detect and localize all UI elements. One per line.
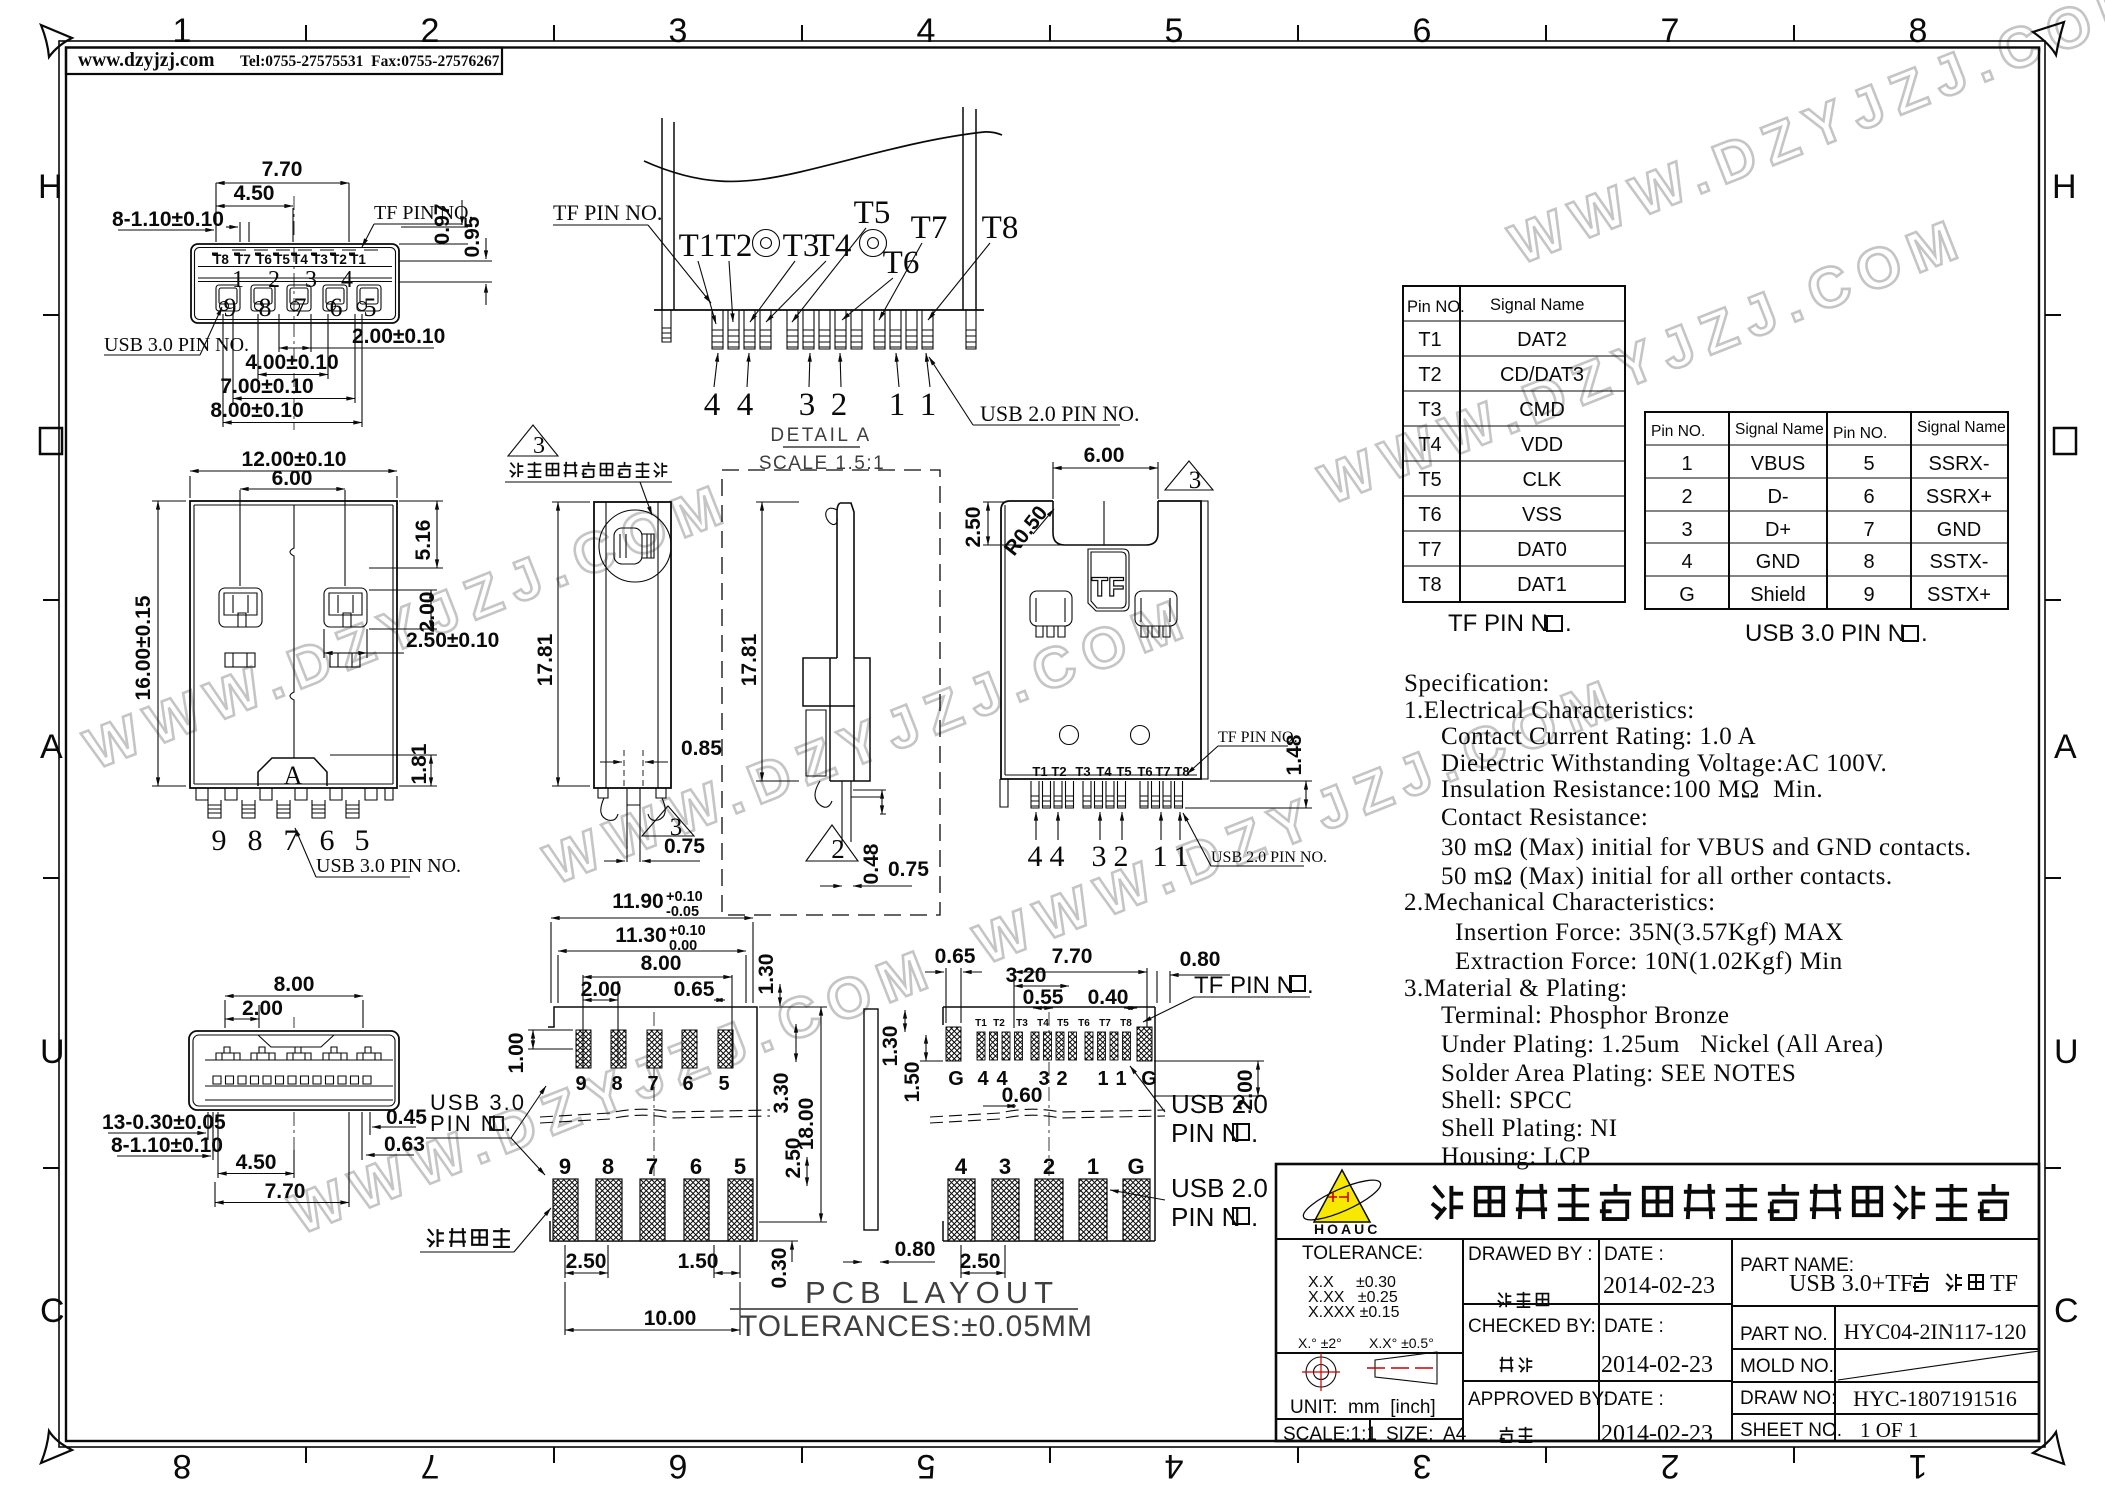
svg-text:VSS: VSS <box>1522 504 1562 526</box>
svg-text:www.dzyjzj.com: www.dzyjzj.com <box>78 50 214 71</box>
svg-text:4: 4 <box>1165 1447 1184 1485</box>
svg-text:0.85: 0.85 <box>681 737 722 760</box>
svg-text:3: 3 <box>1681 519 1692 541</box>
svg-text:4: 4 <box>917 12 936 50</box>
svg-text:5: 5 <box>734 1154 746 1179</box>
svg-text:4.50: 4.50 <box>236 1151 277 1174</box>
svg-text:0.97: 0.97 <box>431 204 454 245</box>
svg-text:Housing: LCP: Housing: LCP <box>1441 1143 1591 1170</box>
svg-text:T3: T3 <box>1418 399 1441 421</box>
svg-text:T7: T7 <box>1155 764 1170 779</box>
svg-text:Pin NO.: Pin NO. <box>1407 298 1465 316</box>
svg-text:HYC-1807191516: HYC-1807191516 <box>1853 1386 2017 1411</box>
svg-text:3: 3 <box>999 1154 1011 1179</box>
svg-text:1: 1 <box>920 387 937 423</box>
svg-text:6: 6 <box>1413 12 1432 50</box>
svg-text:Solder Area Plating: SEE NOTES: Solder Area Plating: SEE NOTES <box>1441 1060 1796 1087</box>
svg-text:8: 8 <box>173 1447 192 1485</box>
svg-text:3: 3 <box>533 433 545 459</box>
svg-text:7: 7 <box>284 824 299 857</box>
svg-text:USB 2.0 PIN NO.: USB 2.0 PIN NO. <box>1211 849 1327 866</box>
svg-text:SSRX-: SSRX- <box>1928 453 1989 475</box>
svg-text:DETAIL A: DETAIL A <box>770 425 871 446</box>
svg-text:3: 3 <box>799 387 816 423</box>
svg-text:A: A <box>40 728 63 766</box>
svg-text:3: 3 <box>1189 467 1202 494</box>
svg-text:Contact Current Rating: 1.0 A: Contact Current Rating: 1.0 A <box>1441 723 1756 750</box>
svg-text:7.00±0.10: 7.00±0.10 <box>220 375 313 398</box>
svg-text:SSRX+: SSRX+ <box>1926 486 1992 508</box>
svg-text:T5: T5 <box>1418 469 1441 491</box>
svg-text:PIN N: PIN N <box>1171 1202 1240 1232</box>
svg-text:U: U <box>40 1033 65 1071</box>
svg-text:1: 1 <box>173 12 192 50</box>
svg-text:CMD: CMD <box>1519 399 1565 421</box>
svg-text:.: . <box>1307 972 1314 999</box>
svg-text:Signal Name: Signal Name <box>1735 421 1824 438</box>
svg-text:Under Plating: 1.25um Nickel: Under Plating: 1.25um Nickel (All Area) <box>1441 1031 1884 1058</box>
svg-text:1.Electrical Characteristics:: 1.Electrical Characteristics: <box>1404 697 1695 724</box>
svg-text:T3: T3 <box>1016 1018 1028 1029</box>
svg-text:T2: T2 <box>1418 364 1441 386</box>
svg-text:0.80: 0.80 <box>895 1238 936 1261</box>
svg-text:8: 8 <box>1863 551 1874 573</box>
svg-text:0.63: 0.63 <box>384 1133 425 1156</box>
svg-text:T6: T6 <box>883 245 920 281</box>
svg-text:0.95: 0.95 <box>461 216 484 257</box>
svg-text:T1: T1 <box>975 1018 987 1029</box>
svg-text:2: 2 <box>421 12 440 50</box>
svg-text:Shell: SPCC: Shell: SPCC <box>1441 1087 1572 1114</box>
svg-text:TOLERANCE:: TOLERANCE: <box>1302 1243 1423 1264</box>
svg-text:PART NO.: PART NO. <box>1740 1324 1828 1345</box>
svg-text:3.Material & Plating:: 3.Material & Plating: <box>1404 975 1628 1002</box>
svg-text:9: 9 <box>224 293 237 322</box>
svg-text:MOLD NO.: MOLD NO. <box>1740 1356 1834 1377</box>
svg-text:6: 6 <box>669 1447 688 1485</box>
svg-text:TF PIN NO.: TF PIN NO. <box>553 200 662 225</box>
svg-text:.: . <box>1921 620 1928 647</box>
svg-text:SCALE:1:1: SCALE:1:1 <box>1283 1424 1377 1445</box>
svg-text:7.70: 7.70 <box>1052 945 1093 968</box>
svg-text:T8: T8 <box>1120 1018 1132 1029</box>
svg-text:9: 9 <box>575 1073 586 1095</box>
svg-text:HOAUC: HOAUC <box>1314 1221 1380 1237</box>
svg-text:SHEET NO.: SHEET NO. <box>1740 1420 1842 1441</box>
svg-text:7: 7 <box>647 1073 658 1095</box>
svg-text:8: 8 <box>259 293 272 322</box>
svg-text:0.80: 0.80 <box>1180 948 1221 971</box>
svg-text:DAT2: DAT2 <box>1517 329 1567 351</box>
svg-text:7: 7 <box>1863 519 1874 541</box>
svg-text:1: 1 <box>1097 1068 1108 1090</box>
svg-text:0.40: 0.40 <box>1088 986 1129 1009</box>
svg-text:DRAWED BY :: DRAWED BY : <box>1468 1244 1593 1265</box>
svg-text:T1: T1 <box>679 228 716 264</box>
svg-text:T6: T6 <box>1418 504 1441 526</box>
svg-text:T6: T6 <box>1137 764 1152 779</box>
svg-text:SSTX+: SSTX+ <box>1927 584 1991 606</box>
svg-text:T7: T7 <box>1418 539 1441 561</box>
svg-text:D+: D+ <box>1765 519 1791 541</box>
svg-text:USB 3.0 PIN N: USB 3.0 PIN N <box>1745 620 1905 647</box>
svg-text:9: 9 <box>1863 584 1874 606</box>
svg-text:USB 2.0 PIN NO.: USB 2.0 PIN NO. <box>980 401 1140 426</box>
svg-text:Specification:: Specification: <box>1404 670 1550 697</box>
svg-text:5: 5 <box>1863 453 1874 475</box>
svg-text:0.75: 0.75 <box>664 835 705 858</box>
svg-text:4.50: 4.50 <box>234 182 275 205</box>
svg-text:PIN N: PIN N <box>1171 1118 1240 1148</box>
svg-text:2: 2 <box>1056 1068 1067 1090</box>
svg-text:Signal Name: Signal Name <box>1917 419 2006 436</box>
svg-text:10.00: 10.00 <box>644 1307 697 1330</box>
svg-text:Insulation Resistance:100 MΩ: Insulation Resistance:100 MΩ Min. <box>1441 776 1823 803</box>
svg-text:5.16: 5.16 <box>412 520 435 561</box>
svg-text:T8: T8 <box>1418 574 1441 596</box>
svg-text:TF: TF <box>1092 572 1125 602</box>
svg-text:T5: T5 <box>1116 764 1131 779</box>
svg-text:0.65: 0.65 <box>935 945 976 968</box>
svg-text:2014-02-23: 2014-02-23 <box>1601 1352 1713 1378</box>
svg-text:8: 8 <box>611 1073 622 1095</box>
svg-text:CLK: CLK <box>1523 469 1563 491</box>
svg-text:DATE :: DATE : <box>1604 1244 1664 1265</box>
svg-text:4.00±0.10: 4.00±0.10 <box>245 351 338 374</box>
svg-text:0.48: 0.48 <box>860 843 883 884</box>
svg-text:2.00±0.10: 2.00±0.10 <box>352 325 445 348</box>
svg-text:7: 7 <box>646 1154 658 1179</box>
svg-text:HYC04-2IN117-120: HYC04-2IN117-120 <box>1844 1319 2027 1344</box>
svg-text:PIN N: PIN N <box>430 1111 499 1136</box>
svg-text:T5: T5 <box>854 195 891 231</box>
svg-text:2.50±0.10: 2.50±0.10 <box>406 629 499 652</box>
svg-text:SCALE 1.5:1: SCALE 1.5:1 <box>759 453 885 474</box>
svg-text:G: G <box>948 1068 964 1090</box>
svg-text:2.00: 2.00 <box>416 592 439 633</box>
svg-text:1.50: 1.50 <box>678 1250 719 1273</box>
svg-text:6.00: 6.00 <box>272 467 313 490</box>
svg-text:3.30: 3.30 <box>770 1073 793 1114</box>
svg-text:T3: T3 <box>1075 764 1090 779</box>
svg-text:2: 2 <box>1043 1154 1055 1179</box>
svg-text:TF PIN NO.: TF PIN NO. <box>374 202 473 224</box>
svg-text:GND: GND <box>1756 551 1800 573</box>
svg-text:5: 5 <box>355 824 370 857</box>
svg-text:6: 6 <box>1863 486 1874 508</box>
svg-text:0.65: 0.65 <box>674 978 715 1001</box>
svg-text:8: 8 <box>1909 12 1928 50</box>
svg-text:4: 4 <box>1050 840 1065 873</box>
svg-text:DAT0: DAT0 <box>1517 539 1567 561</box>
svg-text:4: 4 <box>1028 840 1043 873</box>
svg-text:2014-02-23: 2014-02-23 <box>1603 1273 1715 1299</box>
svg-text:1: 1 <box>889 387 906 423</box>
svg-text:1 OF 1: 1 OF 1 <box>1860 1418 1918 1442</box>
svg-text:A: A <box>2054 728 2077 766</box>
svg-text:9: 9 <box>212 824 227 857</box>
svg-text:.: . <box>505 1111 511 1136</box>
svg-text:6: 6 <box>330 293 343 322</box>
svg-text:6: 6 <box>690 1154 702 1179</box>
svg-text:VBUS: VBUS <box>1751 453 1805 475</box>
svg-text:Terminal: Phosphor Bronze: Terminal: Phosphor Bronze <box>1441 1002 1729 1029</box>
svg-text:DRAW NO:: DRAW NO: <box>1740 1388 1836 1409</box>
svg-text:3: 3 <box>669 12 688 50</box>
svg-text:Shell Plating: NI: Shell Plating: NI <box>1441 1115 1618 1142</box>
svg-text:SIZE: A4: SIZE: A4 <box>1386 1424 1467 1445</box>
svg-text:9: 9 <box>559 1154 571 1179</box>
svg-text:TF PIN N: TF PIN N <box>1194 972 1294 999</box>
svg-text:D-: D- <box>1767 486 1788 508</box>
svg-text:8-1.10±0.10: 8-1.10±0.10 <box>112 208 224 231</box>
svg-text:1.48: 1.48 <box>1283 734 1306 775</box>
svg-text:1.81: 1.81 <box>408 743 431 784</box>
svg-text:X.° ±2° X.X° ±0.5°: X.° ±2° X.X° ±0.5° <box>1298 1335 1434 1351</box>
svg-text:0.60: 0.60 <box>1002 1084 1043 1107</box>
svg-text:SSTX-: SSTX- <box>1930 551 1989 573</box>
svg-text:1.30: 1.30 <box>879 1026 902 1067</box>
svg-text:2014-02-23: 2014-02-23 <box>1601 1421 1713 1447</box>
svg-text:X.XXX ±0.15: X.XXX ±0.15 <box>1308 1304 1400 1321</box>
svg-text:1: 1 <box>232 267 244 293</box>
svg-text:6.00: 6.00 <box>1084 444 1125 467</box>
svg-text:.: . <box>1251 1118 1258 1148</box>
svg-text:Shield: Shield <box>1750 584 1806 606</box>
svg-text:1: 1 <box>1115 1068 1126 1090</box>
svg-text:H: H <box>38 168 63 206</box>
svg-text:7.70: 7.70 <box>265 1180 306 1203</box>
svg-text:2.50: 2.50 <box>960 1250 1001 1273</box>
svg-text:0.55: 0.55 <box>1023 986 1064 1009</box>
svg-text:2.50: 2.50 <box>566 1250 607 1273</box>
svg-text:7: 7 <box>294 293 307 322</box>
svg-text:T2: T2 <box>993 1018 1005 1029</box>
svg-text:4: 4 <box>737 387 754 423</box>
svg-text:G: G <box>1141 1068 1157 1090</box>
svg-text:2.00: 2.00 <box>242 997 283 1020</box>
svg-text:Pin NO.: Pin NO. <box>1651 423 1705 440</box>
svg-text:2: 2 <box>831 387 848 423</box>
svg-text:VDD: VDD <box>1521 434 1563 456</box>
svg-text:A: A <box>284 761 303 790</box>
svg-text:3: 3 <box>1092 840 1107 873</box>
svg-text:DATE :: DATE : <box>1604 1389 1664 1410</box>
svg-text:3: 3 <box>1413 1447 1432 1485</box>
svg-text:+0.10: +0.10 <box>669 923 706 939</box>
svg-text:5: 5 <box>364 293 377 322</box>
svg-text:.: . <box>1565 610 1572 637</box>
svg-text:2.Mechanical Characteristics:: 2.Mechanical Characteristics: <box>1404 889 1716 916</box>
svg-text:1.50: 1.50 <box>901 1062 924 1103</box>
svg-text:USB 3.0+TF: USB 3.0+TF <box>1789 1271 1913 1297</box>
svg-text:8.00: 8.00 <box>274 973 315 996</box>
svg-text:4: 4 <box>704 387 721 423</box>
svg-text:17.81: 17.81 <box>738 633 761 686</box>
svg-text:2.50: 2.50 <box>962 507 985 548</box>
svg-text:1: 1 <box>1153 840 1168 873</box>
svg-text:T4: T4 <box>815 228 852 264</box>
svg-text:30 mΩ (Max) initial for VBUS a: 30 mΩ (Max) initial for VBUS and GND con… <box>1441 834 1972 861</box>
svg-text:4: 4 <box>1681 551 1692 573</box>
svg-text:.: . <box>1251 1202 1258 1232</box>
svg-text:7: 7 <box>1661 12 1680 50</box>
svg-text:DATE :: DATE : <box>1604 1316 1664 1337</box>
svg-text:PCB LAYOUT: PCB LAYOUT <box>805 1275 1059 1310</box>
svg-text:17.81: 17.81 <box>534 633 557 686</box>
svg-text:8.00: 8.00 <box>641 952 682 975</box>
svg-text:16.00±0.15: 16.00±0.15 <box>132 595 155 700</box>
svg-text:GND: GND <box>1937 519 1981 541</box>
svg-text:USB 2.0: USB 2.0 <box>1171 1089 1268 1119</box>
svg-text:5: 5 <box>718 1073 729 1095</box>
svg-text:T1: T1 <box>1032 764 1047 779</box>
svg-text:G: G <box>1127 1154 1144 1179</box>
svg-text:2.00: 2.00 <box>581 978 622 1001</box>
svg-text:CD/DAT3: CD/DAT3 <box>1500 364 1584 386</box>
svg-text:3.20: 3.20 <box>1006 964 1047 987</box>
svg-text:2.50: 2.50 <box>782 1138 805 1179</box>
svg-text:TF: TF <box>1990 1271 2018 1297</box>
svg-text:50 mΩ (Max) initial for all or: 50 mΩ (Max) initial for all orther conta… <box>1441 863 1893 890</box>
svg-text:T4: T4 <box>1037 1018 1049 1029</box>
svg-text:G: G <box>1679 584 1695 606</box>
svg-text:2: 2 <box>1114 840 1129 873</box>
svg-text:Signal Name: Signal Name <box>1490 296 1584 314</box>
svg-text:+0.10: +0.10 <box>666 889 703 905</box>
svg-text:UNIT: mm [inch]: UNIT: mm [inch] <box>1290 1397 1436 1418</box>
svg-text:1: 1 <box>1087 1154 1099 1179</box>
svg-text:4: 4 <box>955 1154 968 1179</box>
svg-text:USB 2.0: USB 2.0 <box>1171 1173 1268 1203</box>
svg-text:11.90: 11.90 <box>612 890 663 913</box>
svg-text:1: 1 <box>1681 453 1692 475</box>
svg-text:T6: T6 <box>1078 1018 1090 1029</box>
svg-text:C: C <box>40 1292 65 1330</box>
svg-text:1.30: 1.30 <box>755 954 778 995</box>
svg-text:1: 1 <box>1174 840 1189 873</box>
svg-text:H: H <box>2052 168 2077 206</box>
svg-text:Extraction Force: 10N(1.02Kgf): Extraction Force: 10N(1.02Kgf) Min <box>1455 948 1843 975</box>
svg-text:2: 2 <box>1661 1447 1680 1485</box>
svg-text:Tel:0755-27575531 Fax:0755-27: Tel:0755-27575531 Fax:0755-27576267 <box>240 53 500 70</box>
svg-text:T4: T4 <box>1418 434 1441 456</box>
svg-text:TF PIN N: TF PIN N <box>1448 610 1548 637</box>
svg-text:8-1.10±0.10: 8-1.10±0.10 <box>111 1134 223 1157</box>
svg-text:Pin NO.: Pin NO. <box>1833 425 1887 442</box>
svg-text:6: 6 <box>320 824 335 857</box>
svg-text:11.30: 11.30 <box>615 924 666 947</box>
svg-text:Dielectric Withstanding Voltag: Dielectric Withstanding Voltage:AC 100V. <box>1441 750 1887 777</box>
svg-text:2: 2 <box>831 834 845 864</box>
svg-text:T7: T7 <box>1099 1018 1111 1029</box>
svg-text:13-0.30±0.05: 13-0.30±0.05 <box>102 1111 226 1134</box>
svg-text:T8: T8 <box>1174 764 1189 779</box>
svg-text:T2: T2 <box>1051 764 1066 779</box>
svg-text:1: 1 <box>1909 1447 1928 1485</box>
svg-text:2: 2 <box>1681 486 1692 508</box>
svg-text:8: 8 <box>248 824 263 857</box>
svg-text:T4: T4 <box>1096 764 1112 779</box>
svg-text:5: 5 <box>1165 12 1184 50</box>
svg-text:USB 3.0 PIN NO.: USB 3.0 PIN NO. <box>104 334 249 356</box>
svg-text:Insertion Force: 35N(3.57Kgf): Insertion Force: 35N(3.57Kgf) MAX <box>1455 919 1844 946</box>
svg-text:0.45: 0.45 <box>386 1106 427 1129</box>
svg-text:T7: T7 <box>911 210 948 246</box>
svg-text:7: 7 <box>421 1447 440 1485</box>
svg-text:0.30: 0.30 <box>768 1248 791 1289</box>
svg-text:T2: T2 <box>716 228 753 264</box>
svg-text:C: C <box>2054 1292 2079 1330</box>
svg-text:T1: T1 <box>1418 329 1441 351</box>
svg-text:1.00: 1.00 <box>505 1033 528 1074</box>
svg-text:5: 5 <box>917 1447 936 1485</box>
svg-text:DAT1: DAT1 <box>1517 574 1567 596</box>
svg-text:CHECKED BY:: CHECKED BY: <box>1468 1316 1596 1337</box>
svg-text:0.75: 0.75 <box>888 858 929 881</box>
svg-text:T5: T5 <box>1057 1018 1069 1029</box>
svg-text:USB 3.0 PIN NO.: USB 3.0 PIN NO. <box>316 855 461 877</box>
svg-text:8: 8 <box>602 1154 614 1179</box>
svg-text:TOLERANCES:±0.05MM: TOLERANCES:±0.05MM <box>739 1310 1093 1343</box>
svg-text:7.70: 7.70 <box>262 158 303 181</box>
svg-text:6: 6 <box>682 1073 693 1095</box>
svg-text:Contact Resistance:: Contact Resistance: <box>1441 804 1648 831</box>
svg-text:2: 2 <box>268 267 280 293</box>
svg-text:8.00±0.10: 8.00±0.10 <box>210 399 303 422</box>
svg-text:T8: T8 <box>982 210 1019 246</box>
svg-text:U: U <box>2054 1033 2079 1071</box>
svg-text:APPROVED BY:: APPROVED BY: <box>1468 1389 1608 1410</box>
svg-text:4: 4 <box>977 1068 989 1090</box>
